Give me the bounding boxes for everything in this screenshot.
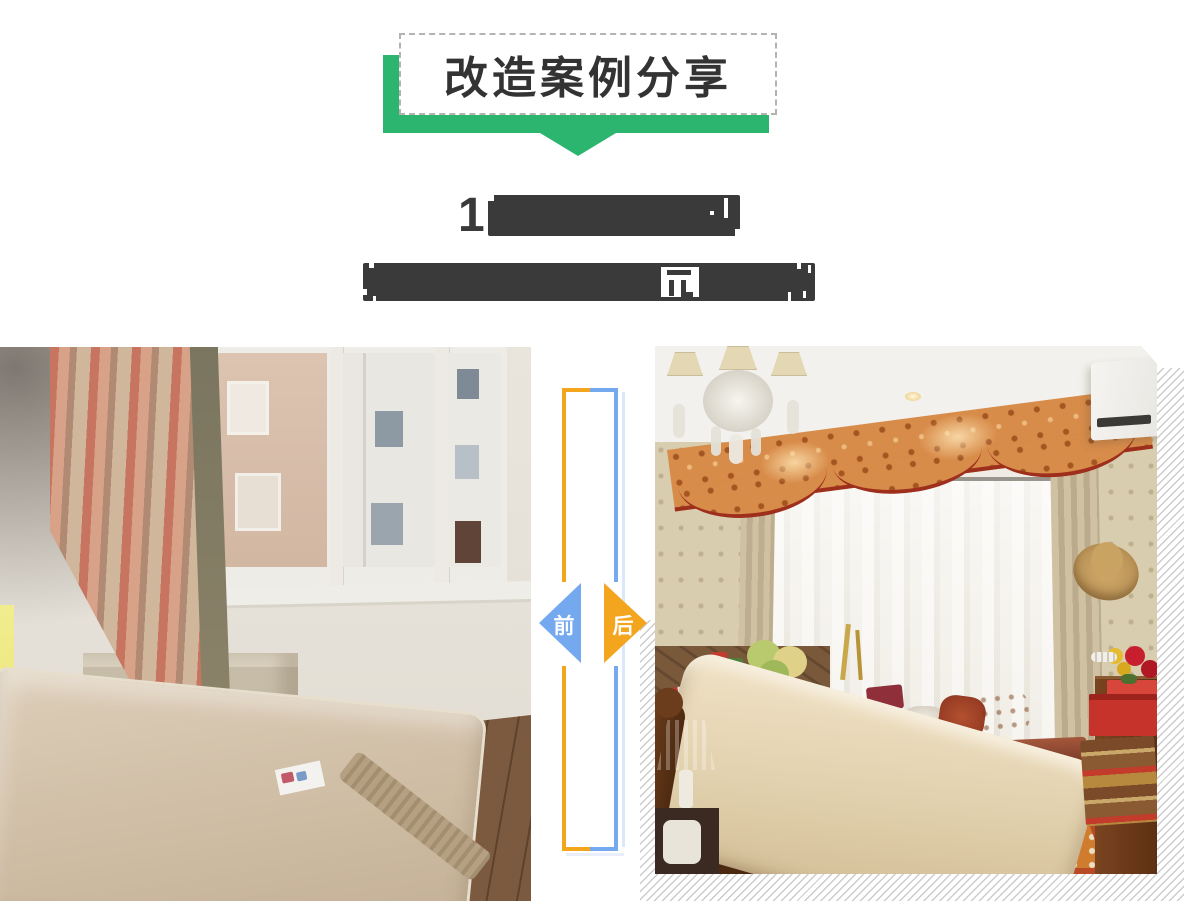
- building-window: [455, 445, 479, 479]
- mattress: [0, 666, 488, 901]
- building-edge: [363, 353, 366, 567]
- redaction-notch: [808, 265, 811, 273]
- headline-visible-digit: 1: [458, 196, 485, 236]
- headline-redaction-bar: [488, 195, 740, 236]
- redaction-notch: [363, 289, 367, 295]
- window-mullion: [331, 347, 343, 599]
- divider-border-left: [562, 666, 566, 847]
- section-badge: 改造案例分享: [399, 33, 777, 115]
- recessed-light: [905, 392, 921, 401]
- building-window: [227, 381, 269, 435]
- lamp-shade: [657, 720, 715, 770]
- headline-redacted: 1: [458, 194, 740, 236]
- white-handbag: [663, 820, 701, 864]
- divider-border-right: [614, 666, 618, 847]
- building-window: [375, 411, 403, 447]
- lamp-body: [679, 770, 693, 808]
- book-stack: [1080, 736, 1157, 827]
- ribbon-tail-triangle: [540, 133, 616, 156]
- leaf: [1121, 674, 1137, 684]
- building-window: [455, 521, 481, 563]
- window-mullion: [435, 347, 449, 599]
- before-label: 前: [549, 610, 579, 640]
- table-lamp: [655, 720, 719, 874]
- redaction-notch: [369, 263, 374, 268]
- red-box: [1089, 694, 1157, 736]
- redaction-notch: [735, 229, 740, 236]
- divider-border-left: [562, 392, 566, 582]
- window: [185, 347, 507, 599]
- divider-border-right: [614, 392, 618, 582]
- divider-border-top: [562, 388, 618, 392]
- air-conditioner: [1091, 357, 1157, 441]
- window-pane: [343, 353, 435, 567]
- subheadline-redaction-bar: [363, 263, 815, 301]
- divider-shadow: [566, 853, 624, 856]
- promo-page: 改造案例分享 1: [0, 0, 1184, 901]
- building-window: [371, 503, 403, 545]
- redaction-notch: [803, 291, 806, 298]
- redaction-notch: [797, 263, 801, 269]
- chandelier: [655, 346, 820, 466]
- redaction-notch: [488, 195, 494, 201]
- window-pane: [449, 353, 501, 567]
- photo-before: [0, 347, 531, 901]
- red-flower: [1141, 660, 1157, 678]
- photo-after: [655, 346, 1157, 874]
- partially-visible-glyph: [661, 267, 699, 297]
- sun-hat-crown: [1091, 542, 1123, 578]
- ac-vent: [1097, 415, 1151, 428]
- after-label: 后: [608, 610, 638, 640]
- redaction-notch: [724, 198, 728, 218]
- section-badge-label: 改造案例分享: [444, 42, 732, 106]
- redaction-notch: [788, 292, 791, 301]
- redaction-notch: [710, 211, 714, 215]
- building-window: [235, 473, 281, 531]
- redaction-notch: [373, 296, 376, 301]
- building-window: [457, 369, 479, 399]
- pearl-string: [1091, 652, 1117, 662]
- divider-border-bottom: [562, 847, 618, 851]
